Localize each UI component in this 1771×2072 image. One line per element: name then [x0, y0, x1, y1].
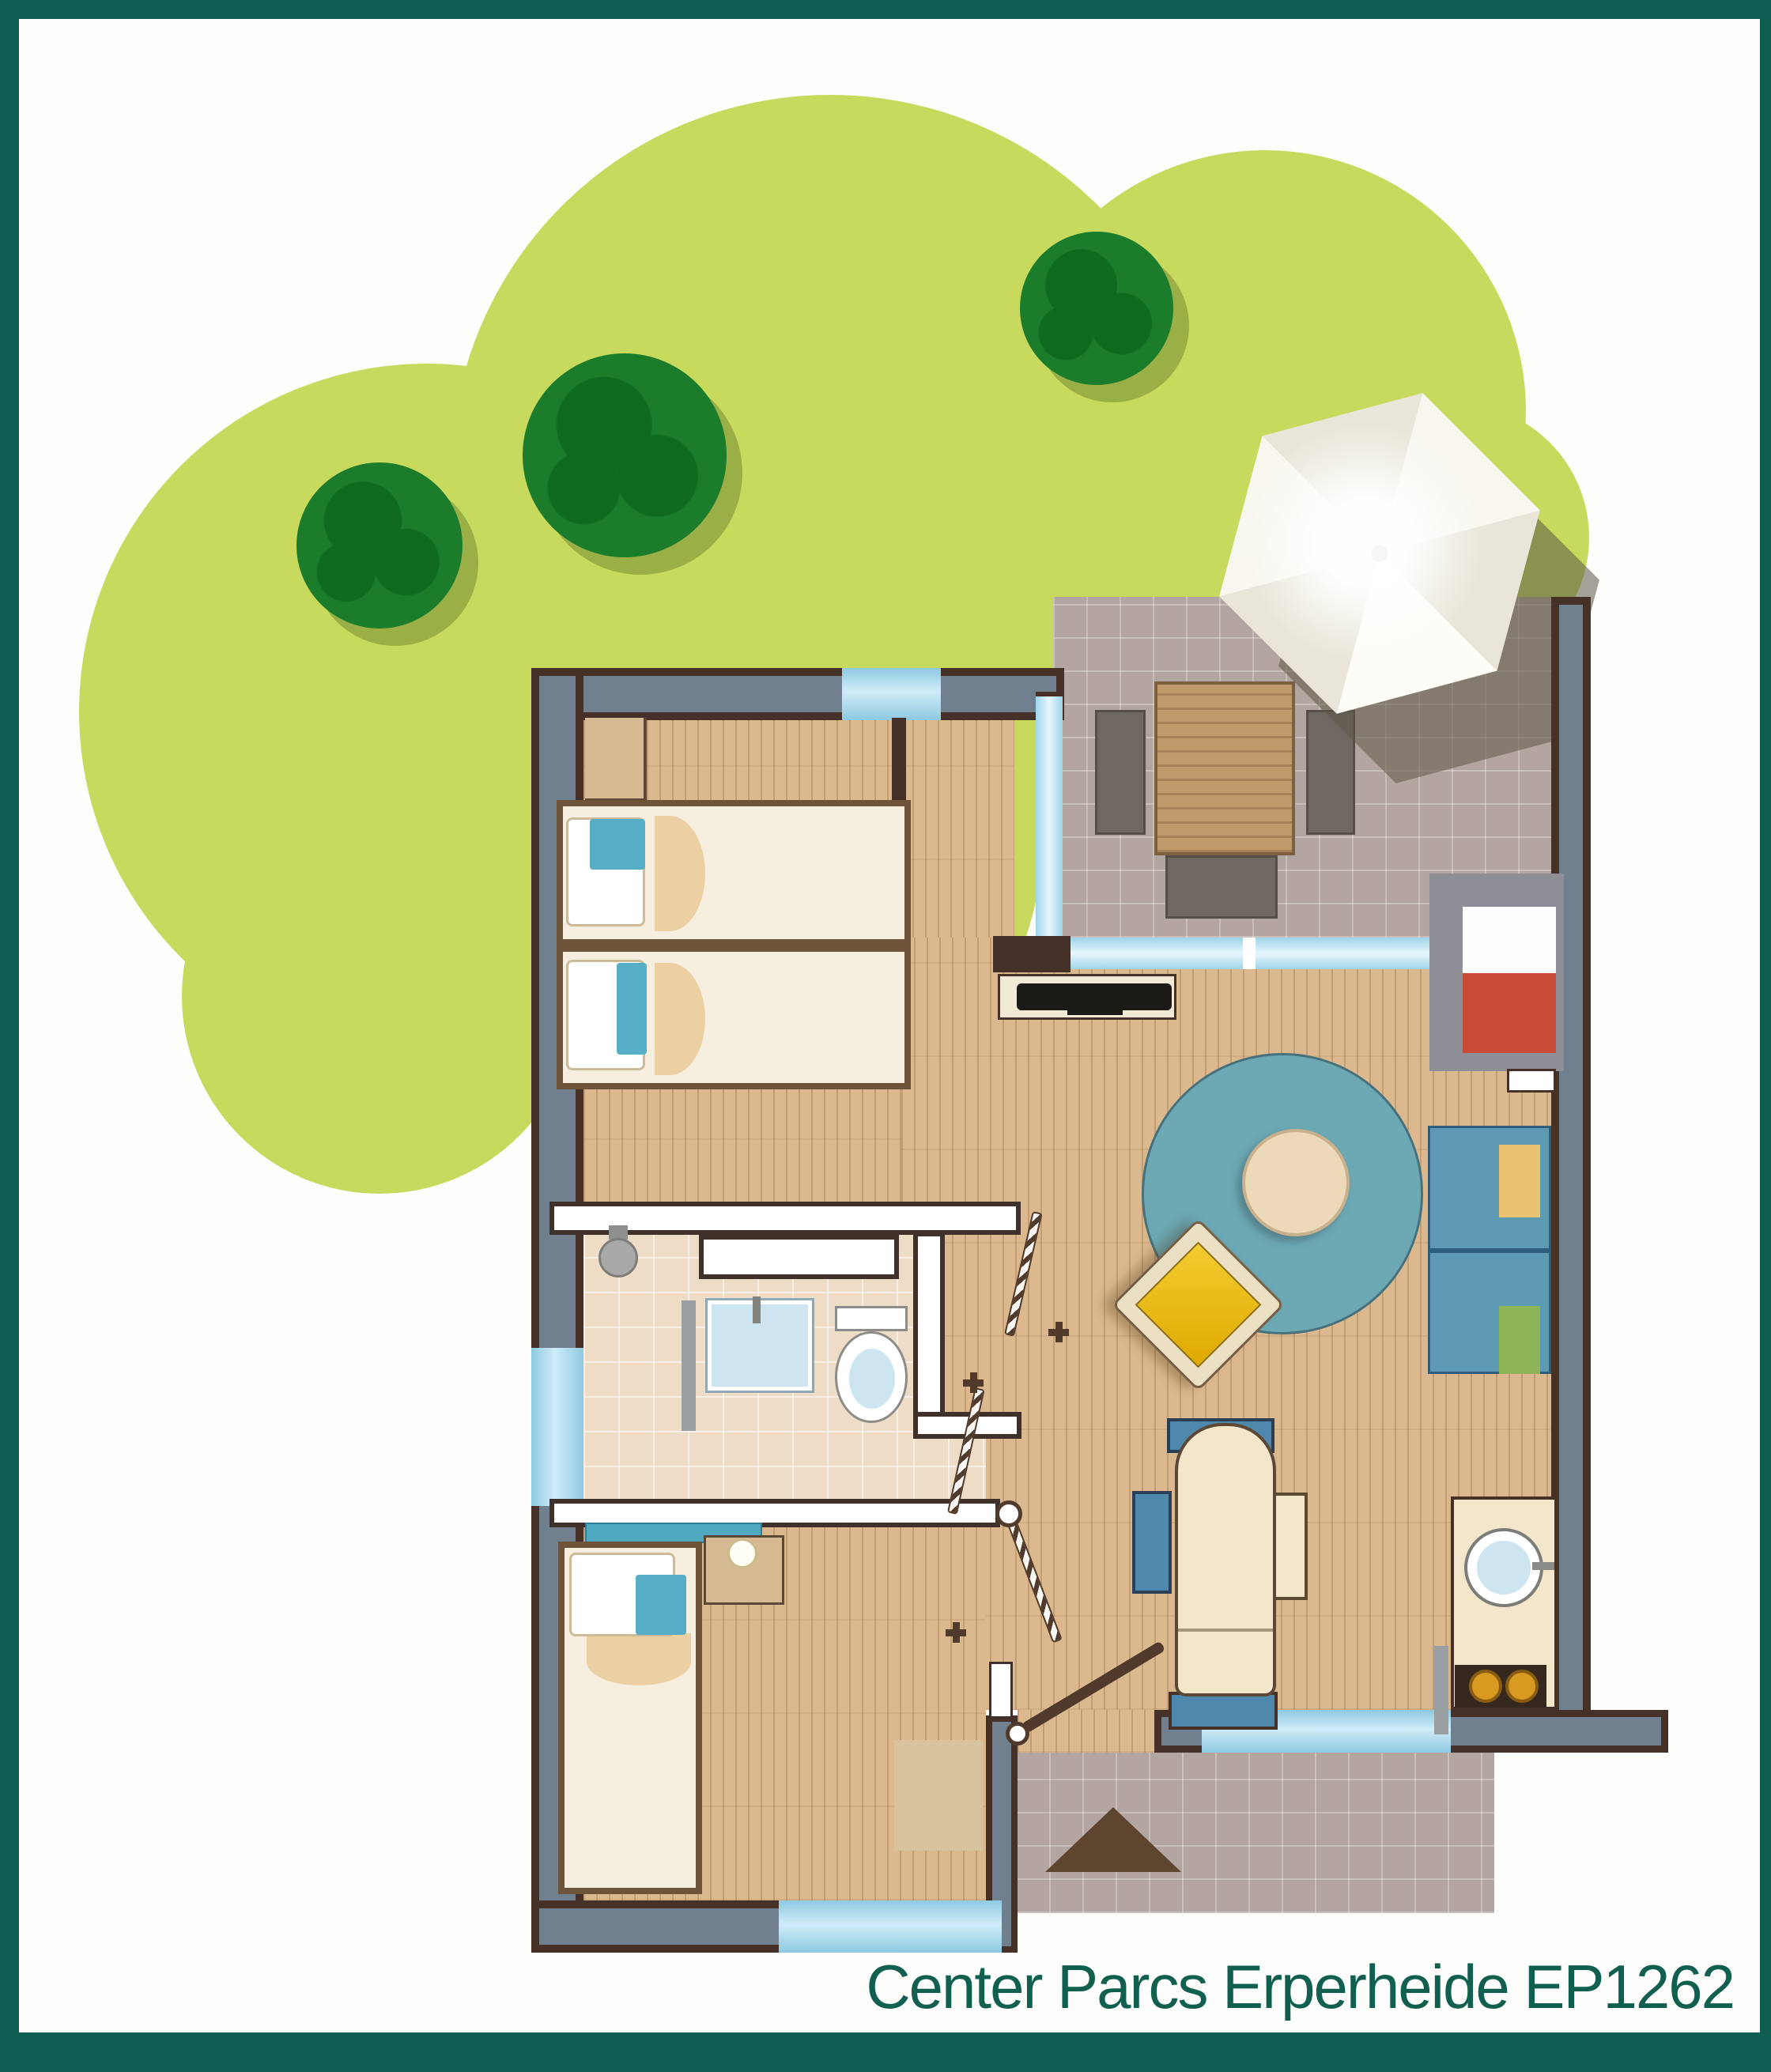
terrace-chair — [1095, 710, 1146, 835]
closet — [585, 718, 647, 802]
tree-icon — [523, 353, 727, 557]
terrace-chair — [1165, 855, 1278, 919]
tree-icon — [1020, 232, 1173, 385]
tv-icon — [1017, 983, 1172, 1010]
door-hinge-icon — [1048, 1322, 1069, 1342]
kitchen-sink-icon — [1464, 1528, 1543, 1607]
lamp-icon — [727, 1538, 757, 1568]
frame-border-right — [1760, 0, 1771, 2072]
entrance-arrow-icon — [1045, 1807, 1181, 1872]
glass-door-divider — [1243, 938, 1256, 969]
toilet-bowl — [849, 1349, 895, 1409]
wall-stub — [989, 1662, 1013, 1719]
cushion-green — [1499, 1306, 1540, 1374]
bathroom-vanity — [699, 1235, 899, 1279]
pillow-teal — [636, 1575, 686, 1635]
pillow-teal — [617, 963, 647, 1055]
frame-border-bottom — [0, 2032, 1771, 2072]
bathroom-floor — [913, 1435, 986, 1502]
shower-head-icon — [599, 1238, 638, 1278]
oven-handle — [1434, 1646, 1448, 1734]
relax-chair-red — [1463, 973, 1556, 1053]
door-hinge-icon — [963, 1372, 984, 1393]
cushion-yellow — [1499, 1145, 1540, 1217]
pillow-teal — [590, 819, 645, 870]
wall-shelf — [1507, 1069, 1556, 1093]
frame-border-top — [0, 0, 1771, 19]
door-hinge-icon — [946, 1622, 966, 1643]
wall-post — [993, 936, 1071, 972]
plan-caption: Center Parcs Erperheide EP1262 — [0, 1951, 1734, 2023]
door-pivot-icon — [995, 1500, 1022, 1527]
glass-wall-terrace-side — [1036, 692, 1063, 941]
terrace-table — [1154, 681, 1295, 855]
bathroom-wall-right — [913, 1232, 945, 1437]
burner-icon — [1505, 1670, 1539, 1703]
dining-chair-blue — [1169, 1692, 1278, 1730]
kitchen-sink-basin — [1477, 1541, 1531, 1595]
coffee-table — [1242, 1129, 1350, 1236]
relax-chair-headrest — [1463, 907, 1556, 973]
tree-icon — [296, 462, 463, 628]
dining-chair-cream — [1271, 1493, 1308, 1600]
window-bedroom2-bottom — [779, 1900, 1002, 1953]
blanket — [587, 1633, 691, 1685]
frame-border-left — [0, 0, 19, 2072]
doormat — [894, 1740, 983, 1851]
dining-chair-blue — [1132, 1491, 1172, 1594]
toilet-tank — [835, 1306, 908, 1331]
window-bathroom-left — [531, 1348, 583, 1506]
floor-plan-canvas: Center Parcs Erperheide EP1262 — [0, 0, 1771, 2072]
burner-icon — [1469, 1670, 1502, 1703]
tv-stand — [1067, 1010, 1123, 1015]
wall-top — [531, 668, 1064, 720]
dining-table-seam — [1178, 1629, 1273, 1632]
kitchen-tap-icon — [1532, 1562, 1554, 1570]
door-pivot-icon — [1006, 1722, 1029, 1746]
sink-tap-icon — [753, 1296, 761, 1323]
window-top — [842, 668, 941, 720]
towel-rail — [682, 1300, 696, 1431]
dining-table — [1175, 1423, 1276, 1696]
